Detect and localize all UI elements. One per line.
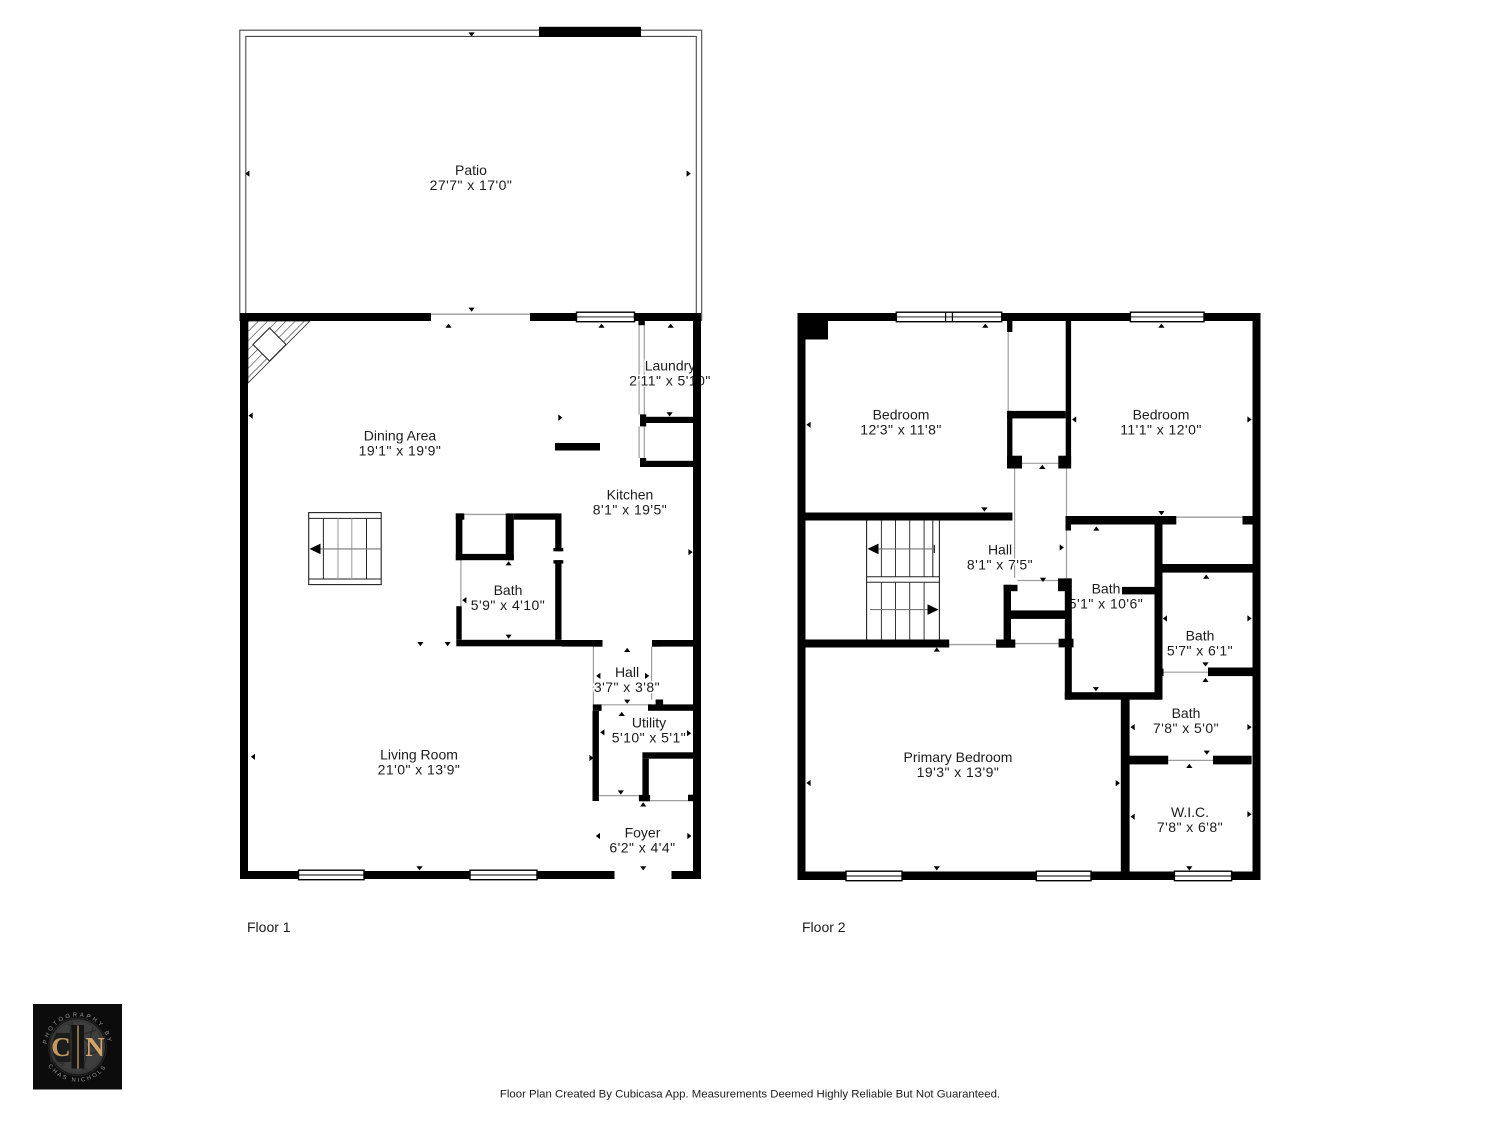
- svg-text:5'10" x 5'1": 5'10" x 5'1": [612, 730, 686, 746]
- svg-text:21'0" x 13'9": 21'0" x 13'9": [378, 762, 461, 778]
- svg-text:Bedroom: Bedroom: [873, 407, 930, 423]
- svg-text:Hall: Hall: [615, 664, 639, 680]
- svg-text:Floor 1: Floor 1: [247, 919, 291, 935]
- svg-text:5'9" x 4'10": 5'9" x 4'10": [471, 597, 545, 613]
- svg-text:8'1" x 19'5": 8'1" x 19'5": [593, 502, 667, 518]
- svg-text:Patio: Patio: [455, 162, 487, 178]
- svg-text:19'1" x 19'9": 19'1" x 19'9": [359, 443, 442, 459]
- svg-text:8'1" x 7'5": 8'1" x 7'5": [967, 557, 1033, 573]
- svg-text:Hall: Hall: [988, 542, 1012, 558]
- svg-text:Dining Area: Dining Area: [364, 428, 437, 444]
- svg-text:5'7" x 6'1": 5'7" x 6'1": [1167, 643, 1233, 659]
- svg-text:Bath: Bath: [1172, 705, 1201, 721]
- svg-text:Floor Plan Created By Cubicasa: Floor Plan Created By Cubicasa App. Meas…: [500, 1089, 1000, 1101]
- svg-text:3'7" x 3'8": 3'7" x 3'8": [594, 679, 660, 695]
- svg-text:Living Room: Living Room: [380, 747, 458, 763]
- svg-text:Utility: Utility: [632, 715, 666, 731]
- svg-text:12'3" x 11'8": 12'3" x 11'8": [860, 422, 942, 438]
- svg-text:N: N: [85, 1032, 105, 1062]
- svg-text:Bedroom: Bedroom: [1133, 407, 1190, 423]
- svg-text:Floor 2: Floor 2: [802, 919, 846, 935]
- svg-text:Bath: Bath: [1092, 581, 1121, 597]
- svg-text:C: C: [51, 1032, 71, 1062]
- svg-text:6'2" x 4'4": 6'2" x 4'4": [609, 840, 675, 856]
- svg-text:Bath: Bath: [494, 582, 523, 598]
- svg-text:7'8" x 5'0": 7'8" x 5'0": [1153, 720, 1219, 736]
- svg-text:7'8" x 6'8": 7'8" x 6'8": [1157, 819, 1223, 835]
- svg-text:Bath: Bath: [1186, 628, 1215, 644]
- svg-text:11'1" x 12'0": 11'1" x 12'0": [1120, 422, 1202, 438]
- svg-text:5'1" x 10'6": 5'1" x 10'6": [1069, 596, 1143, 612]
- svg-text:Primary Bedroom: Primary Bedroom: [904, 749, 1013, 765]
- svg-text:W.I.C.: W.I.C.: [1171, 804, 1209, 820]
- svg-text:Kitchen: Kitchen: [607, 487, 654, 503]
- svg-text:19'3" x 13'9": 19'3" x 13'9": [917, 764, 1000, 780]
- svg-text:27'7" x 17'0": 27'7" x 17'0": [430, 177, 513, 193]
- svg-text:Foyer: Foyer: [625, 825, 661, 841]
- svg-text:Laundry: Laundry: [645, 358, 696, 374]
